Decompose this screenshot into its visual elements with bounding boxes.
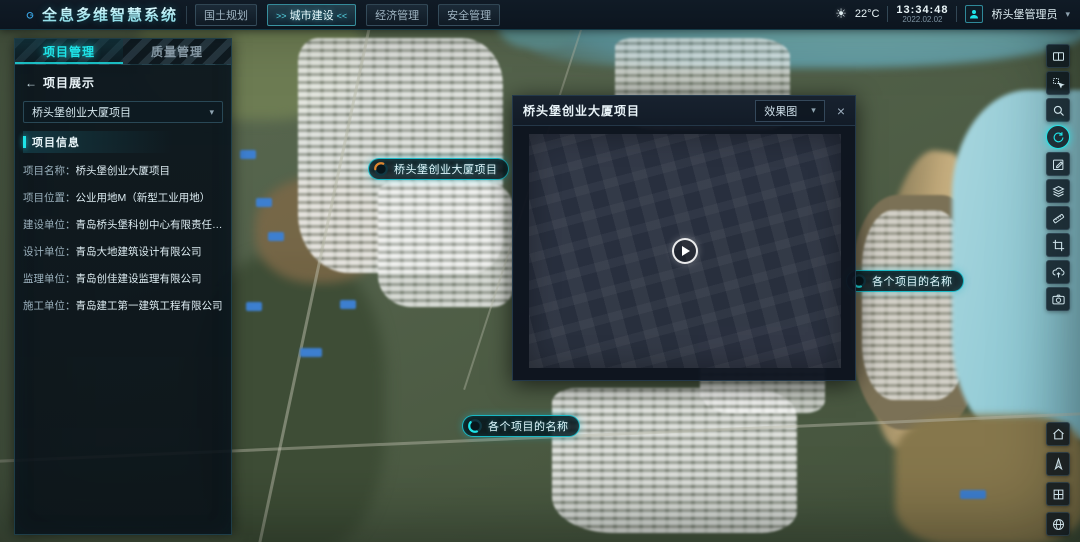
tab-quality-management[interactable]: 质量管理	[123, 39, 231, 64]
app-title: 全息多维智慧系统	[42, 4, 178, 25]
person-icon	[968, 8, 980, 20]
app-window: 桥头堡创业大厦项目 各个项目的名称 各个项目的名称 全息多维智慧系统 国土规划 …	[0, 0, 1080, 542]
field-project-name: 项目名称：桥头堡创业大厦项目	[15, 163, 231, 178]
tab-project-management[interactable]: 项目管理	[15, 39, 123, 64]
divider	[186, 6, 187, 24]
camera-icon[interactable]	[1046, 287, 1070, 311]
map-urban-area	[378, 182, 513, 307]
map-texture	[852, 195, 980, 430]
project-panel: 项目管理 质量管理 ← 项目展示 桥头堡创业大厦项目 ▾ 项目信息 项目名称：桥…	[14, 38, 232, 535]
marker-label: 各个项目的名称	[872, 273, 953, 289]
temperature-label: 22°C	[855, 8, 880, 20]
map-texture	[255, 178, 385, 283]
measure-icon[interactable]	[1046, 206, 1070, 230]
play-triangle-icon	[682, 246, 690, 256]
map-urban-area	[552, 388, 797, 533]
panel-subheader: ← 项目展示	[15, 65, 231, 97]
project-select-dropdown[interactable]: 桥头堡创业大厦项目 ▾	[23, 101, 223, 123]
active-prefix: >>	[276, 11, 287, 21]
field-contractor-unit: 施工单位：青岛建工第一建筑工程有限公司	[15, 298, 231, 313]
map-beach	[858, 146, 986, 455]
map-road	[246, 0, 382, 542]
play-button[interactable]	[672, 238, 698, 264]
nav-item-economy[interactable]: 经济管理	[366, 4, 428, 26]
field-supervision-unit: 监理单位：青岛创佳建设监理有限公司	[15, 271, 231, 286]
panel-subtitle: 项目展示	[43, 74, 95, 91]
map-marker-generic-1[interactable]: 各个项目的名称	[462, 415, 580, 437]
marker-ring-icon	[467, 418, 483, 434]
marker-ring-icon	[373, 161, 389, 177]
globe-icon[interactable]	[1046, 512, 1070, 536]
split-screen-icon[interactable]	[1046, 44, 1070, 68]
north-compass-icon[interactable]	[1046, 452, 1070, 476]
map-texture	[340, 300, 356, 309]
clock: 13:34:48 2022.02.02	[896, 4, 948, 25]
home-icon[interactable]	[1046, 422, 1070, 446]
top-navigation-bar: 全息多维智慧系统 国土规划 >> 城市建设 << 经济管理 安全管理 ☀ 22°…	[0, 0, 1080, 30]
modal-header-controls: 效果图 ▾ ×	[755, 100, 845, 122]
active-suffix: <<	[337, 11, 348, 21]
reset-view-icon[interactable]	[1046, 125, 1070, 149]
map-texture	[256, 198, 272, 207]
map-texture	[246, 302, 262, 311]
project-select-value: 桥头堡创业大厦项目	[32, 104, 131, 120]
render-view-value: 效果图	[764, 103, 797, 119]
search-icon[interactable]	[1046, 98, 1070, 122]
select-cursor-icon[interactable]	[1046, 71, 1070, 95]
map-texture	[268, 232, 284, 241]
app-logo: 全息多维智慧系统	[0, 4, 178, 25]
field-project-location: 项目位置：公业用地M（新型工业用地）	[15, 190, 231, 205]
modal-media-preview[interactable]	[529, 134, 841, 368]
close-icon[interactable]: ×	[837, 104, 845, 118]
user-avatar[interactable]	[965, 5, 983, 23]
username-label: 桥头堡管理员	[991, 6, 1057, 22]
crop-icon[interactable]	[1046, 233, 1070, 257]
project-detail-modal: 桥头堡创业大厦项目 效果图 ▾ ×	[512, 95, 856, 381]
map-toolbar-top	[1046, 44, 1070, 311]
map-urban-area	[862, 210, 967, 400]
chevron-down-icon[interactable]: ▾	[1065, 9, 1070, 20]
marker-label: 各个项目的名称	[488, 418, 569, 434]
edit-note-icon[interactable]	[1046, 152, 1070, 176]
chevron-down-icon: ▾	[811, 105, 816, 116]
panel-tabs: 项目管理 质量管理	[15, 39, 231, 65]
layers-icon[interactable]	[1046, 179, 1070, 203]
date-label: 2022.02.02	[896, 16, 948, 25]
topbar-right: ☀ 22°C 13:34:48 2022.02.02 桥头堡管理员 ▾	[835, 4, 1080, 25]
field-construction-unit: 建设单位：青岛桥头堡科创中心有限责任公司	[15, 217, 231, 232]
main-nav: 国土规划 >> 城市建设 << 经济管理 安全管理	[195, 4, 500, 26]
cloud-upload-icon[interactable]	[1046, 260, 1070, 284]
grid-icon[interactable]	[1046, 482, 1070, 506]
modal-header: 桥头堡创业大厦项目 效果图 ▾ ×	[513, 96, 855, 126]
nav-item-city-construction[interactable]: >> 城市建设 <<	[267, 4, 356, 26]
section-header: 项目信息	[23, 131, 223, 153]
divider	[956, 6, 957, 22]
map-toolbar-bottom	[1046, 422, 1070, 536]
back-arrow-icon[interactable]: ←	[25, 76, 37, 90]
map-texture	[960, 490, 986, 499]
nav-item-land-planning[interactable]: 国土规划	[195, 4, 257, 26]
render-view-dropdown[interactable]: 效果图 ▾	[755, 100, 825, 122]
map-texture	[240, 150, 256, 159]
chevron-down-icon: ▾	[209, 107, 214, 118]
map-urban-area	[298, 38, 503, 273]
weather-sun-icon: ☀	[835, 6, 847, 22]
section-title: 项目信息	[32, 134, 80, 150]
divider	[887, 6, 888, 22]
map-marker-project[interactable]: 桥头堡创业大厦项目	[368, 158, 509, 180]
logo-g-icon	[26, 5, 34, 25]
marker-label: 桥头堡创业大厦项目	[394, 161, 498, 177]
field-design-unit: 设计单位：青岛大地建筑设计有限公司	[15, 244, 231, 259]
nav-item-security[interactable]: 安全管理	[438, 4, 500, 26]
map-texture	[300, 348, 322, 357]
modal-title: 桥头堡创业大厦项目	[523, 102, 640, 119]
section-accent-bar	[23, 136, 26, 148]
map-marker-generic-2[interactable]: 各个项目的名称	[846, 270, 964, 292]
